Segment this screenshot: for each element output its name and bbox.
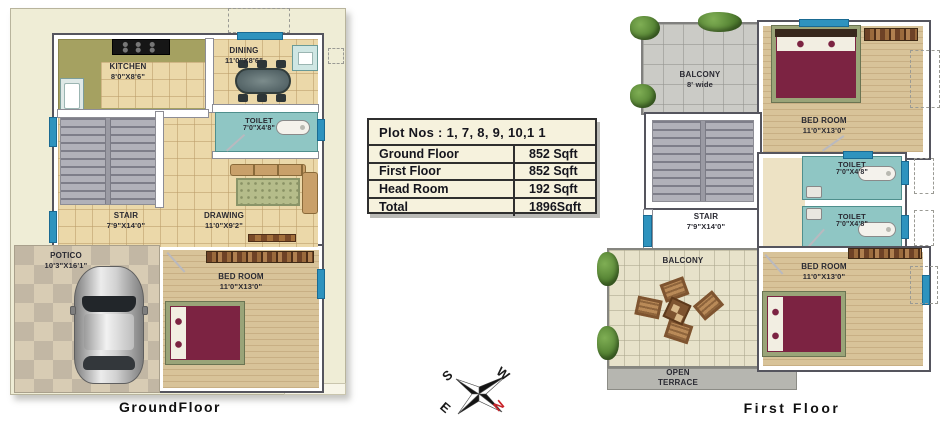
room-dims: 7'0"X4'8" — [812, 169, 892, 178]
room-name: POTICO — [26, 251, 106, 261]
room-label-bedroom-top: BED ROOM 11'0"X13'0" — [768, 116, 880, 135]
row-value: 192 Sqft — [515, 181, 595, 197]
row-value: 1896Sqft — [515, 199, 595, 217]
room-name: STAIR — [666, 212, 746, 222]
sofa-icon — [230, 164, 306, 176]
room-dims: 11'0"X9'2" — [186, 221, 262, 230]
projection-outline — [328, 48, 344, 64]
row-label: First Floor — [369, 164, 515, 180]
plant-icon — [698, 12, 742, 32]
room-dims: 8'0"X8'6" — [84, 72, 172, 81]
room-dims: 11'0"X13'0" — [768, 272, 880, 281]
wall — [213, 105, 318, 112]
gf-staircase — [60, 117, 156, 205]
wardrobe-icon — [206, 251, 314, 263]
window-icon — [50, 212, 56, 242]
wash-basin-icon — [806, 186, 822, 198]
room-name: DINING — [212, 46, 276, 56]
room-label-open-terrace: OPEN TERRACE — [650, 368, 706, 387]
first-floor-caption: First Floor — [722, 400, 862, 416]
table-row: Total 1896Sqft — [369, 199, 595, 217]
projection-outline — [910, 266, 938, 304]
tv-console-icon — [248, 234, 296, 242]
room-name: BED ROOM — [186, 272, 296, 282]
room-label-toilet-lower: TOILET 7'0"X4'8" — [812, 212, 892, 230]
room-label-balcony-bottom: BALCONY — [638, 256, 728, 266]
wall — [58, 110, 208, 117]
room-label-portico: POTICO 10'3"X16'1" — [26, 251, 106, 270]
room-name: TOILET — [812, 212, 892, 221]
bed-icon — [772, 26, 860, 102]
row-value: 852 Sqft — [515, 164, 595, 180]
room-name: BALCONY — [638, 256, 728, 266]
bed-icon — [763, 292, 845, 356]
room-label-drawing: DRAWING 11'0"X9'2" — [186, 211, 262, 230]
room-name: BALCONY — [656, 70, 744, 80]
sofa-icon — [302, 172, 318, 214]
plant-icon — [630, 16, 660, 40]
room-label-toilet-upper: TOILET 7'0"X4'8" — [812, 160, 892, 178]
table-row: Ground Floor 852 Sqft — [369, 146, 595, 164]
window-icon — [800, 20, 848, 26]
plant-icon — [630, 84, 656, 108]
window-icon — [902, 162, 908, 184]
room-dims: 10'3"X16'1" — [26, 261, 106, 270]
room-name: BED ROOM — [768, 116, 880, 126]
wall — [213, 152, 318, 158]
room-label-stair: STAIR 7'9"X14'0" — [90, 211, 162, 230]
row-label: Ground Floor — [369, 146, 515, 162]
wall — [156, 112, 163, 207]
room-name: STAIR — [90, 211, 162, 221]
room-dims: 11'0"X13'0" — [768, 126, 880, 135]
row-label: Head Room — [369, 181, 515, 197]
room-label-balcony-top: BALCONY 8' wide — [656, 70, 744, 89]
window-icon — [644, 216, 651, 246]
room-name: TOILET — [812, 160, 892, 169]
ff-hallway-floor — [763, 158, 805, 248]
kitchen-sink-icon — [60, 78, 84, 114]
car-icon — [74, 266, 144, 384]
bed-icon — [166, 302, 244, 364]
row-value: 852 Sqft — [515, 146, 595, 162]
room-dims: 7'0"X4'8" — [812, 221, 892, 230]
projection-outline — [228, 8, 290, 33]
stove-icon — [112, 39, 170, 55]
row-label: Total — [369, 199, 515, 217]
ff-staircase — [652, 120, 754, 202]
room-dims: 11'0"X8'6" — [212, 56, 276, 65]
floor-plan-canvas: KITCHEN 8'0"X8'6" DINING 11'0"X8'6" TOIL… — [0, 0, 944, 423]
dresser-icon — [864, 28, 918, 41]
rug-icon — [236, 178, 300, 206]
room-dims: 11'0"X13'0" — [186, 282, 296, 291]
room-name: KITCHEN — [84, 62, 172, 72]
room-dims: 7'9"X14'0" — [90, 221, 162, 230]
wardrobe-icon — [848, 248, 922, 259]
room-label-bedroom: BED ROOM 11'0"X13'0" — [186, 272, 296, 291]
room-label-dining: DINING 11'0"X8'6" — [212, 46, 276, 65]
room-name: OPEN TERRACE — [650, 368, 706, 387]
room-label-stair-ff: STAIR 7'9"X14'0" — [666, 212, 746, 231]
area-table: Plot Nos : 1, 7, 8, 9, 10,1 1 Ground Flo… — [367, 118, 597, 214]
window-icon — [844, 152, 872, 158]
plant-icon — [597, 326, 619, 360]
window-icon — [318, 120, 324, 140]
room-label-toilet: TOILET 7'0"X4'8" — [228, 116, 290, 134]
window-icon — [238, 33, 282, 39]
wash-area-icon — [292, 45, 318, 71]
room-label-bedroom-bottom: BED ROOM 11'0"X13'0" — [768, 262, 880, 281]
window-icon — [902, 216, 908, 238]
door-projection — [914, 158, 934, 194]
table-row: First Floor 852 Sqft — [369, 164, 595, 182]
projection-outline — [910, 50, 940, 108]
dining-table-icon — [232, 60, 294, 102]
window-icon — [50, 118, 56, 146]
plot-numbers-title: Plot Nos : 1, 7, 8, 9, 10,1 1 — [369, 120, 595, 146]
room-name: TOILET — [228, 116, 290, 125]
plant-icon — [597, 252, 619, 286]
room-dims: 7'0"X4'8" — [228, 125, 290, 134]
room-label-kitchen: KITCHEN 8'0"X8'6" — [84, 62, 172, 81]
window-icon — [318, 270, 324, 298]
room-name: DRAWING — [186, 211, 262, 221]
room-name: BED ROOM — [768, 262, 880, 272]
door-projection — [914, 210, 934, 246]
room-dims: 7'9"X14'0" — [666, 222, 746, 231]
room-dims: 8' wide — [656, 80, 744, 89]
table-row: Head Room 192 Sqft — [369, 181, 595, 199]
ff-balcony-top-area — [641, 22, 760, 115]
ground-floor-caption: GroundFloor — [95, 399, 245, 415]
